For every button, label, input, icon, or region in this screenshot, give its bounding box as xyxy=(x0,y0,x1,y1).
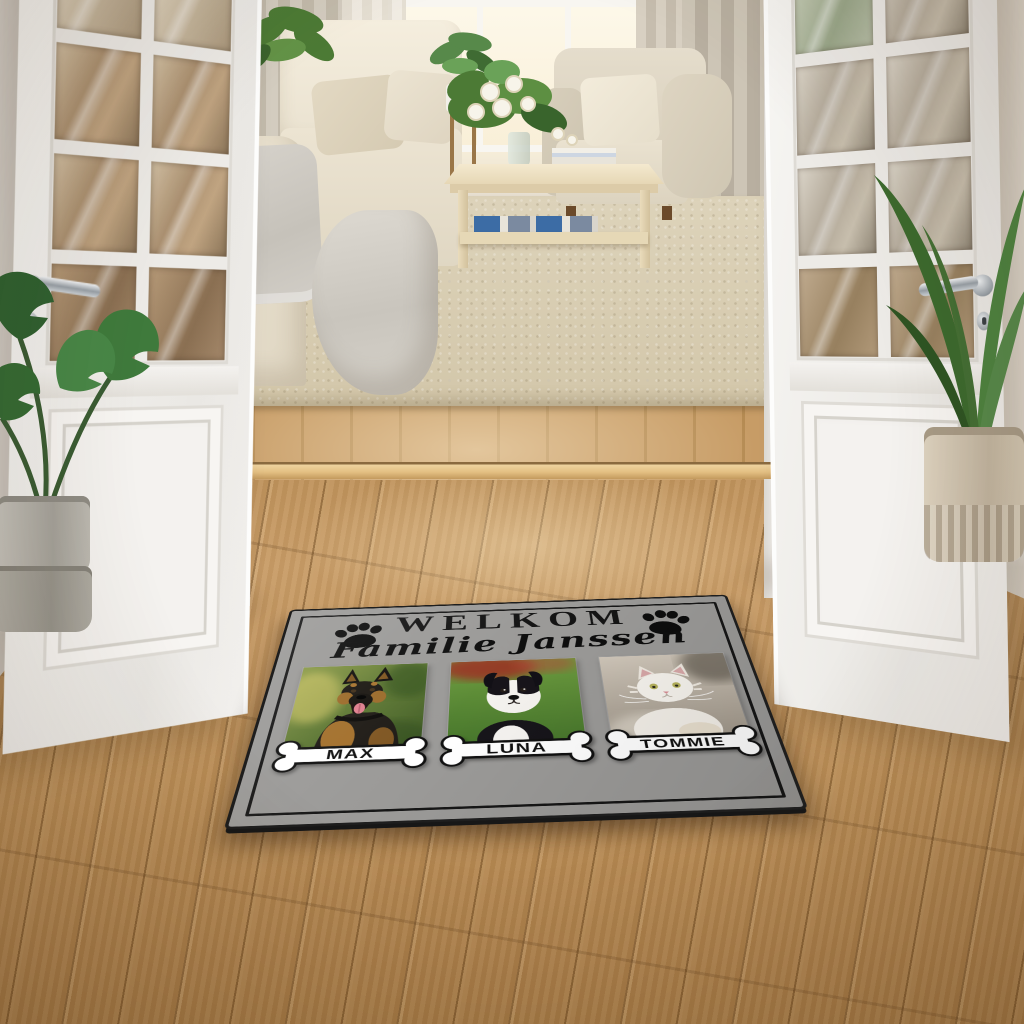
glass-pane xyxy=(153,0,232,51)
pet-photo-max xyxy=(280,663,428,759)
glass-pane xyxy=(54,42,140,146)
tall-plant-leaves xyxy=(858,55,1024,455)
paw-print-icon xyxy=(635,605,693,639)
family-name: Familie Janssen xyxy=(276,621,743,666)
glass-pane xyxy=(52,153,138,254)
table-leg xyxy=(458,190,468,268)
glass-pane xyxy=(151,54,230,154)
welkom-title: WELKOM xyxy=(283,602,735,642)
doormat-border-line xyxy=(245,602,787,816)
pet-name-luna: LUNA xyxy=(486,741,548,757)
tall-plant xyxy=(858,55,1024,575)
bone-label-tommie: TOMMIE xyxy=(595,719,775,767)
product-photo-scene: WELKOM Familie Janssen xyxy=(0,0,1024,1024)
white-cat-illustration xyxy=(599,653,754,748)
books-on-table xyxy=(552,148,616,164)
paw-print-icon xyxy=(329,616,390,654)
border-collie-illustration xyxy=(447,658,587,753)
tall-plant-pot xyxy=(924,427,1024,562)
doormat-perspective: WELKOM Familie Janssen xyxy=(161,508,863,902)
bone-label-luna: LUNA xyxy=(431,725,605,773)
glass-pane xyxy=(884,0,969,44)
pet-photo-luna xyxy=(447,658,587,753)
table-top xyxy=(444,164,664,184)
living-room xyxy=(206,0,806,480)
armchair-arm-right xyxy=(662,74,732,198)
german-shepherd-illustration xyxy=(280,663,428,759)
table-shelf xyxy=(460,232,648,244)
table-apron xyxy=(450,184,658,193)
monstera-leaves xyxy=(0,268,205,518)
throw-blanket-drape xyxy=(312,210,438,395)
doorway-threshold xyxy=(224,462,794,479)
doormat[interactable]: WELKOM Familie Janssen xyxy=(224,595,809,830)
coffee-table xyxy=(444,140,664,295)
glass-pane xyxy=(794,0,873,55)
monstera-pot xyxy=(0,496,90,574)
glass-pane xyxy=(149,161,228,257)
books-on-shelf xyxy=(474,216,598,232)
pet-name-max: MAX xyxy=(325,747,376,763)
pet-photo-tommie xyxy=(599,653,754,748)
table-leg xyxy=(640,190,650,268)
monstera-basket xyxy=(0,566,92,632)
glass-pane xyxy=(57,0,143,39)
bone-label-max: MAX xyxy=(260,731,437,779)
pet-name-tommie: TOMMIE xyxy=(639,735,728,751)
vase xyxy=(508,132,530,168)
